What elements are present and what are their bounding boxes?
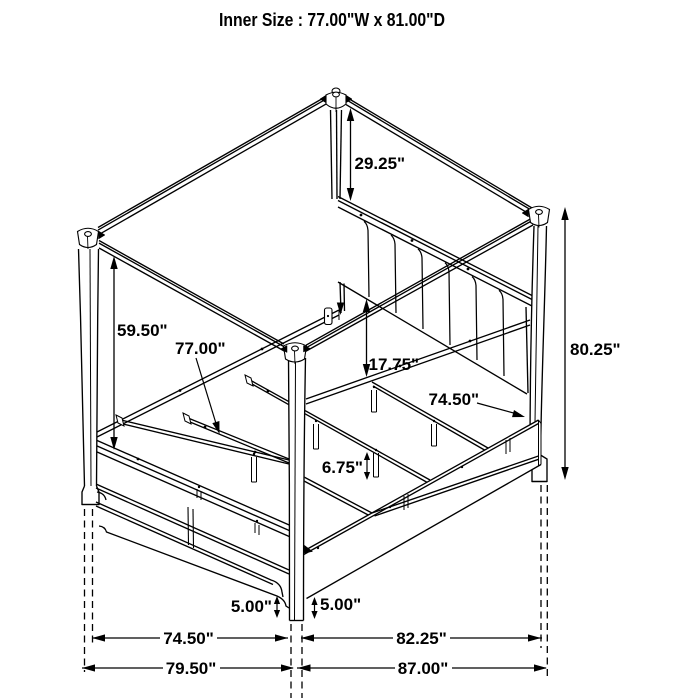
svg-text:Inner Size : 77.00"W x 81.00"D: Inner Size : 77.00"W x 81.00"D: [219, 9, 445, 30]
svg-text:5.00": 5.00": [320, 595, 361, 614]
svg-text:5.00": 5.00": [231, 597, 272, 616]
svg-text:77.00": 77.00": [175, 339, 226, 358]
svg-text:6.75": 6.75": [322, 458, 363, 477]
svg-text:87.00": 87.00": [398, 659, 449, 678]
svg-text:74.50": 74.50": [429, 390, 480, 409]
svg-text:17.75": 17.75": [369, 355, 420, 374]
svg-text:59.50": 59.50": [117, 321, 168, 340]
svg-text:74.50": 74.50": [163, 629, 214, 648]
svg-text:79.50": 79.50": [166, 659, 217, 678]
svg-text:82.25": 82.25": [396, 629, 447, 648]
svg-text:29.25": 29.25": [355, 154, 406, 173]
svg-text:80.25": 80.25": [570, 340, 621, 359]
